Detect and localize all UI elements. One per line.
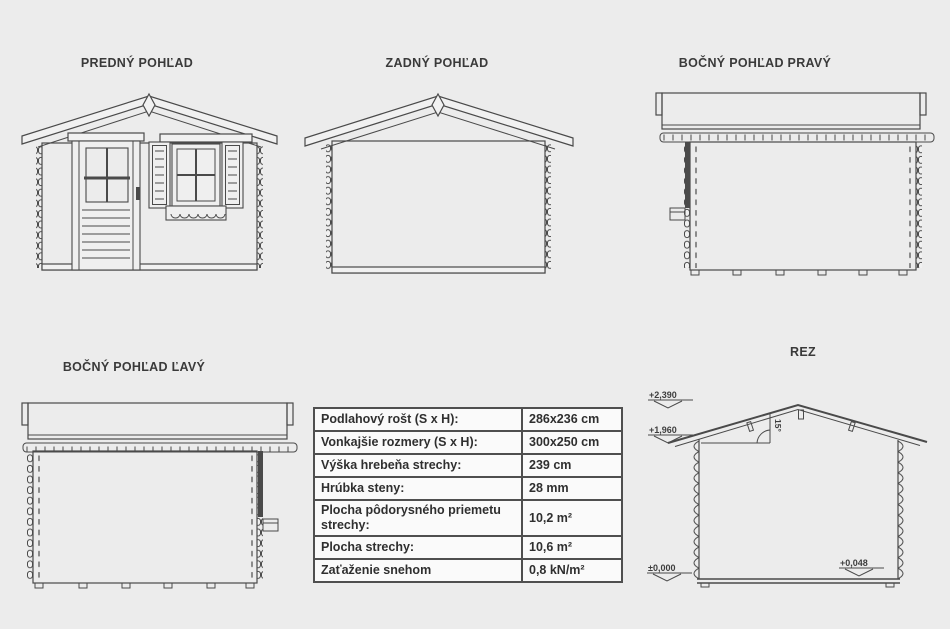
drawing-sheet: PREDNÝ POHĽAD ZADNÝ POHĽAD BOČNÝ POHĽAD … xyxy=(0,0,950,629)
spec-value: 0,8 kN/m² xyxy=(522,559,622,582)
door-trim-edge xyxy=(258,451,263,517)
table-row: Vonkajšie rozmery (S x H): 300x250 cm xyxy=(314,431,622,454)
side-wall xyxy=(684,142,922,270)
front-door xyxy=(68,133,144,270)
spec-label: Výška hrebeňa strechy: xyxy=(314,454,522,477)
spec-value: 300x250 cm xyxy=(522,431,622,454)
spec-label: Plocha pôdorysného priemetu strechy: xyxy=(314,500,522,536)
level-marker-ridge: +2,390 xyxy=(648,390,693,408)
spec-value: 28 mm xyxy=(522,477,622,500)
section-roof xyxy=(668,405,927,447)
table-row: Podlahový rošt (S x H): 286x236 cm xyxy=(314,408,622,431)
downspout xyxy=(670,208,685,220)
left-view-drawing xyxy=(15,393,300,598)
level-marker-ground: ±0,000 xyxy=(647,563,692,581)
window-shutter-left xyxy=(149,142,170,208)
spec-label: Podlahový rošt (S x H): xyxy=(314,408,522,431)
foundation-feet xyxy=(691,270,907,275)
left-view-title: BOČNÝ POHĽAD ĽAVÝ xyxy=(63,360,205,374)
side-wall xyxy=(27,451,263,583)
section-view-title: REZ xyxy=(790,345,816,359)
foundation-feet xyxy=(35,583,254,588)
table-row: Zaťaženie snehom 0,8 kN/m² xyxy=(314,559,622,582)
level-marker-floor: +0,048 xyxy=(839,558,884,576)
door-trim-edge xyxy=(685,142,690,208)
section-floor xyxy=(697,579,900,587)
level-ground-label: ±0,000 xyxy=(648,563,675,573)
rear-view-title: ZADNÝ POHĽAD xyxy=(386,56,489,70)
section-view-drawing: 15° +2,390 +1,960 ±0,000 +0,048 xyxy=(635,383,947,598)
spec-label: Hrúbka steny: xyxy=(314,477,522,500)
rear-wall xyxy=(326,141,551,273)
front-view-drawing xyxy=(8,90,290,288)
level-eaves-label: +1,960 xyxy=(649,425,677,435)
door-handle xyxy=(136,187,140,200)
roof-angle-label: 15° xyxy=(773,419,783,432)
level-ridge-label: +2,390 xyxy=(649,390,677,400)
spec-table: Podlahový rošt (S x H): 286x236 cm Vonka… xyxy=(313,407,623,583)
table-row: Plocha pôdorysného priemetu strechy: 10,… xyxy=(314,500,622,536)
side-roof-slab xyxy=(656,93,934,142)
spec-value: 10,2 m² xyxy=(522,500,622,536)
spec-label: Vonkajšie rozmery (S x H): xyxy=(314,431,522,454)
level-marker-eaves: +1,960 xyxy=(648,425,693,443)
spec-value: 10,6 m² xyxy=(522,536,622,559)
right-view-drawing xyxy=(648,88,948,286)
spec-label: Zaťaženie snehom xyxy=(314,559,522,582)
table-row: Hrúbka steny: 28 mm xyxy=(314,477,622,500)
section-walls xyxy=(690,439,907,579)
window-flower-box xyxy=(166,206,226,220)
spec-label: Plocha strechy: xyxy=(314,536,522,559)
front-window xyxy=(149,134,252,220)
spec-value: 239 cm xyxy=(522,454,622,477)
table-row: Plocha strechy: 10,6 m² xyxy=(314,536,622,559)
downspout xyxy=(263,519,278,531)
level-floor-label: +0,048 xyxy=(840,558,868,568)
spec-value: 286x236 cm xyxy=(522,408,622,431)
right-view-title: BOČNÝ POHĽAD PRAVÝ xyxy=(679,56,831,70)
roof-angle-marker: 15° xyxy=(701,414,783,443)
front-view-title: PREDNÝ POHĽAD xyxy=(81,56,193,70)
rear-view-drawing xyxy=(295,90,585,288)
side-roof-slab xyxy=(22,403,297,452)
table-row: Výška hrebeňa strechy: 239 cm xyxy=(314,454,622,477)
window-shutter-right xyxy=(222,142,243,208)
